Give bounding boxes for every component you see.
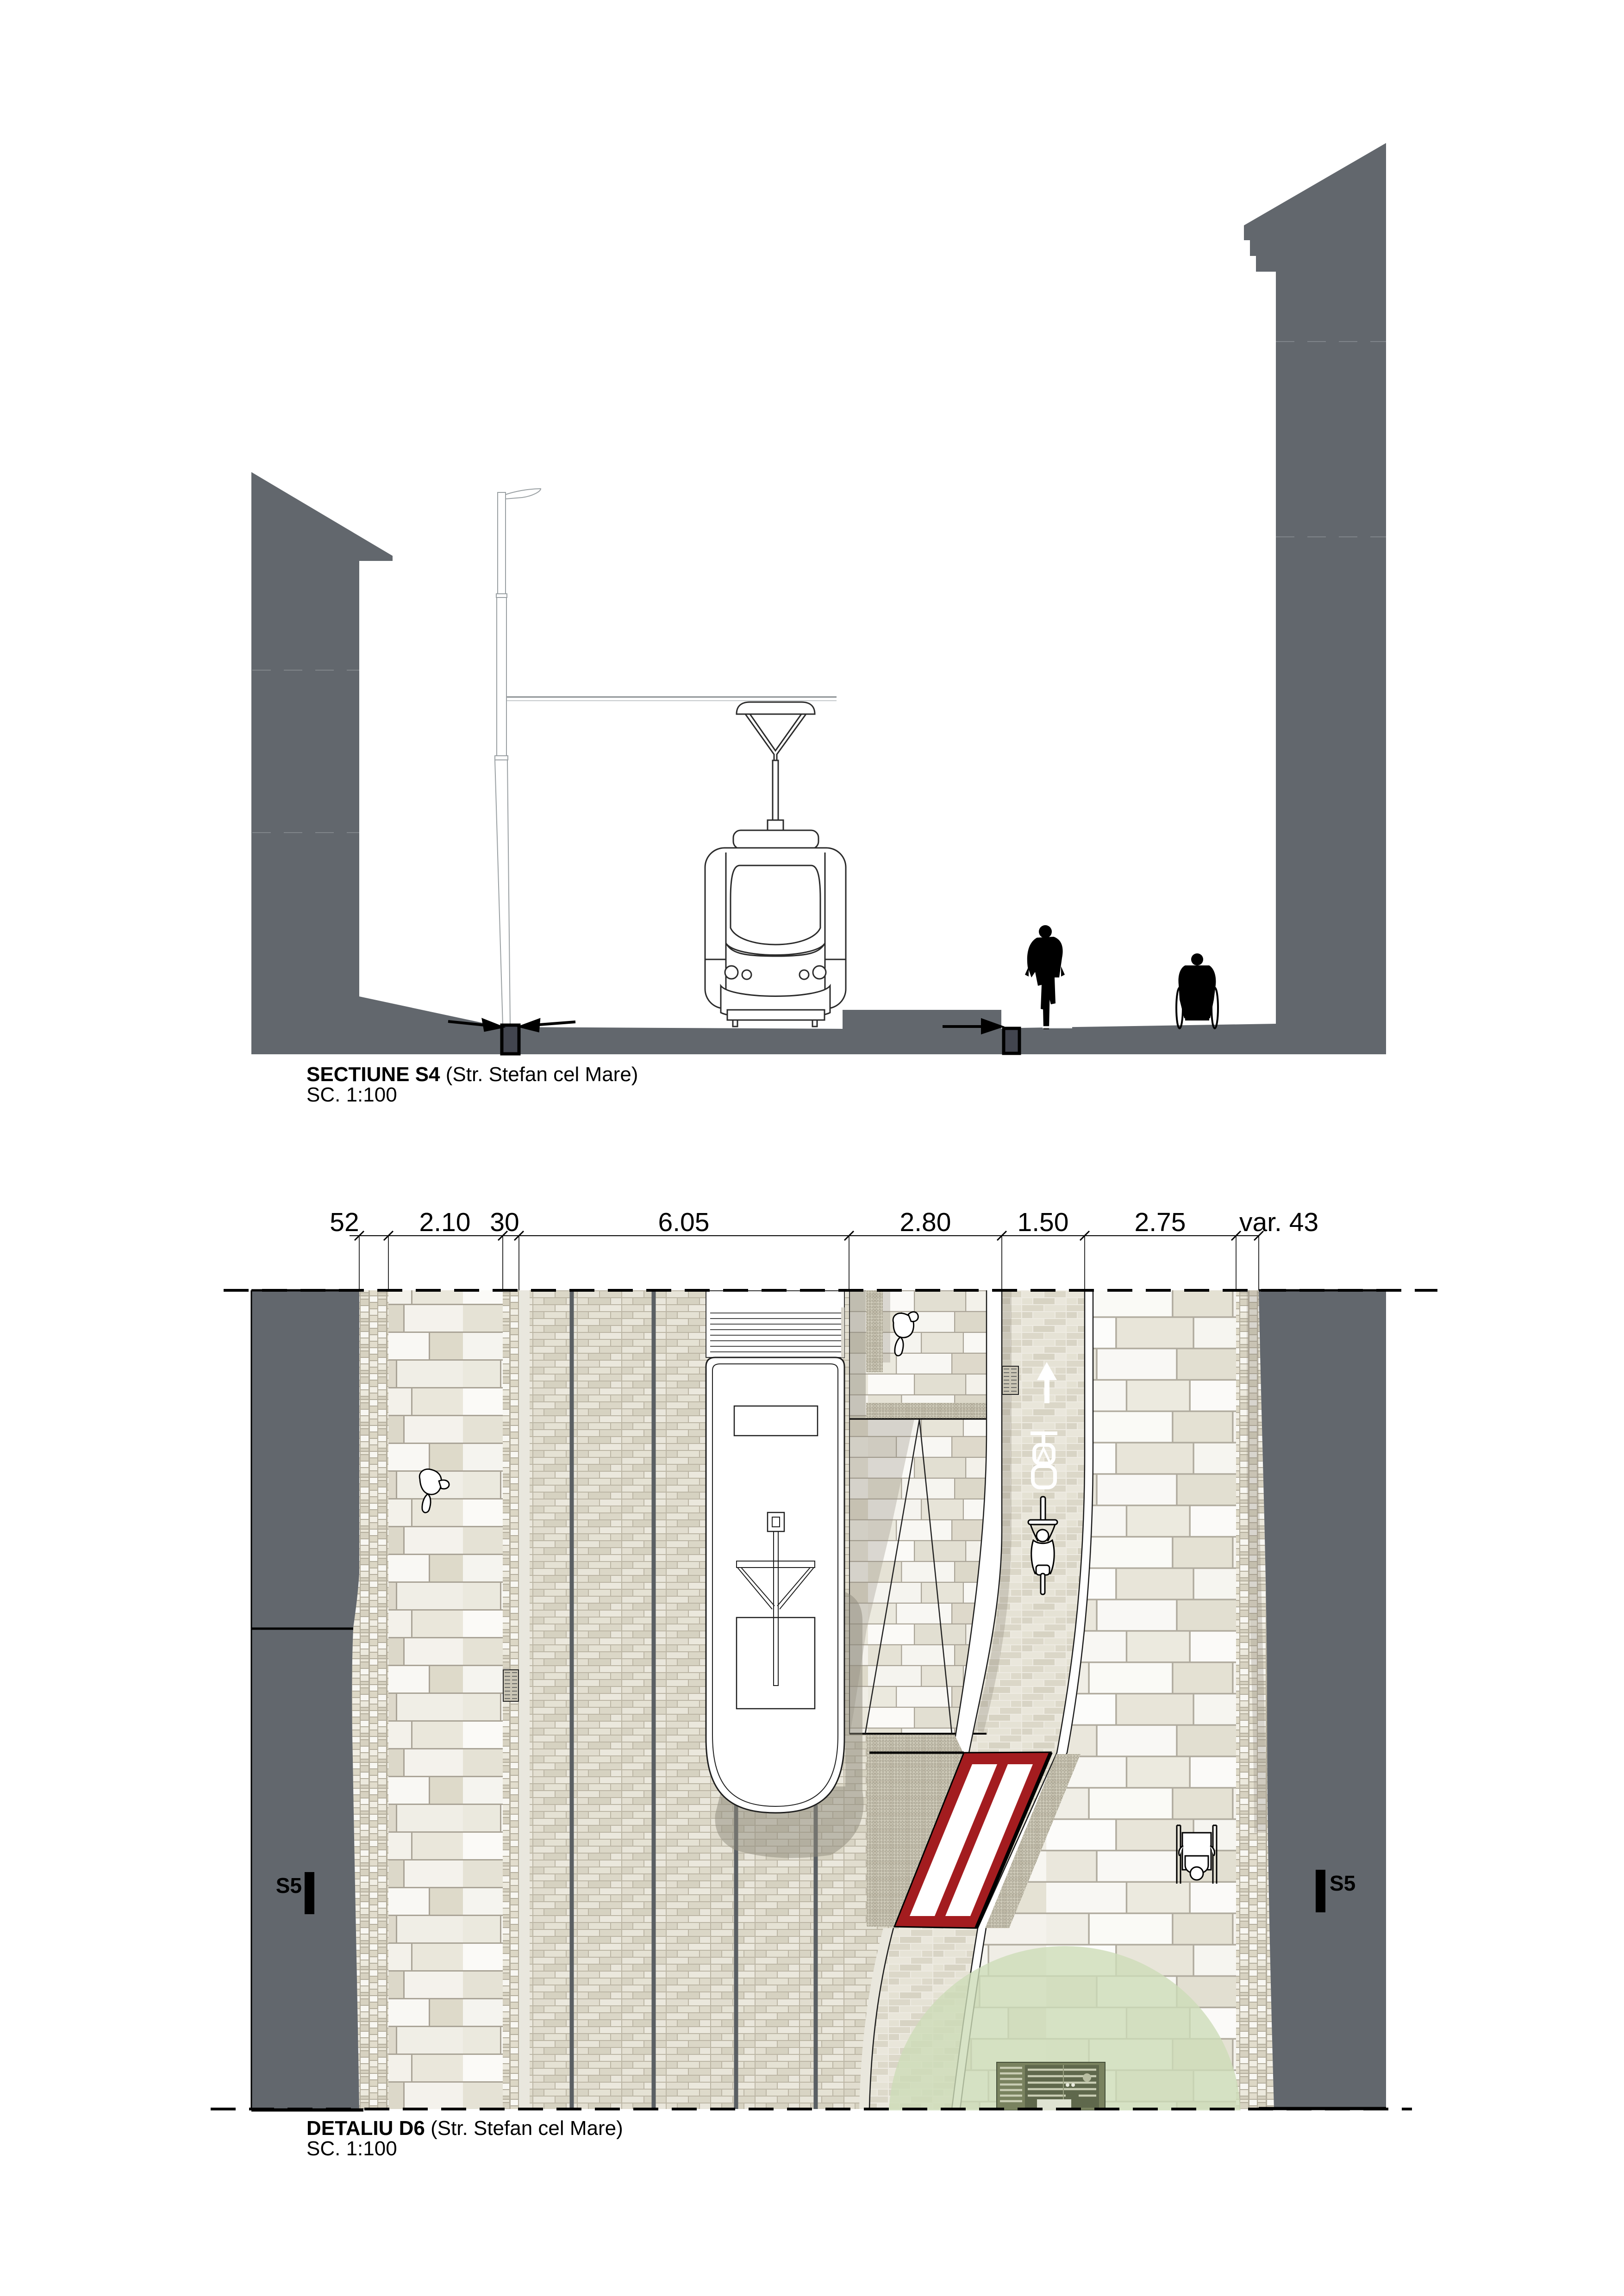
svg-text:2.75: 2.75 xyxy=(1135,1207,1186,1237)
svg-text:SC. 1:100: SC. 1:100 xyxy=(306,1083,397,1106)
svg-text:SECTIUNE S4 (Str. Stefan cel M: SECTIUNE S4 (Str. Stefan cel Mare) xyxy=(306,1063,638,1086)
svg-text:var. 43: var. 43 xyxy=(1239,1207,1318,1237)
svg-text:6.05: 6.05 xyxy=(658,1207,710,1237)
svg-text:2.80: 2.80 xyxy=(900,1207,951,1237)
svg-text:S5: S5 xyxy=(276,1873,302,1898)
svg-text:DETALIU D6 (Str. Stefan cel Ma: DETALIU D6 (Str. Stefan cel Mare) xyxy=(306,2117,623,2140)
svg-text:30: 30 xyxy=(490,1207,519,1237)
svg-text:SC. 1:100: SC. 1:100 xyxy=(306,2137,397,2160)
svg-text:S5: S5 xyxy=(1330,1871,1355,1895)
svg-text:2.10: 2.10 xyxy=(419,1207,471,1237)
svg-text:52: 52 xyxy=(330,1207,359,1237)
svg-text:1.50: 1.50 xyxy=(1018,1207,1069,1237)
